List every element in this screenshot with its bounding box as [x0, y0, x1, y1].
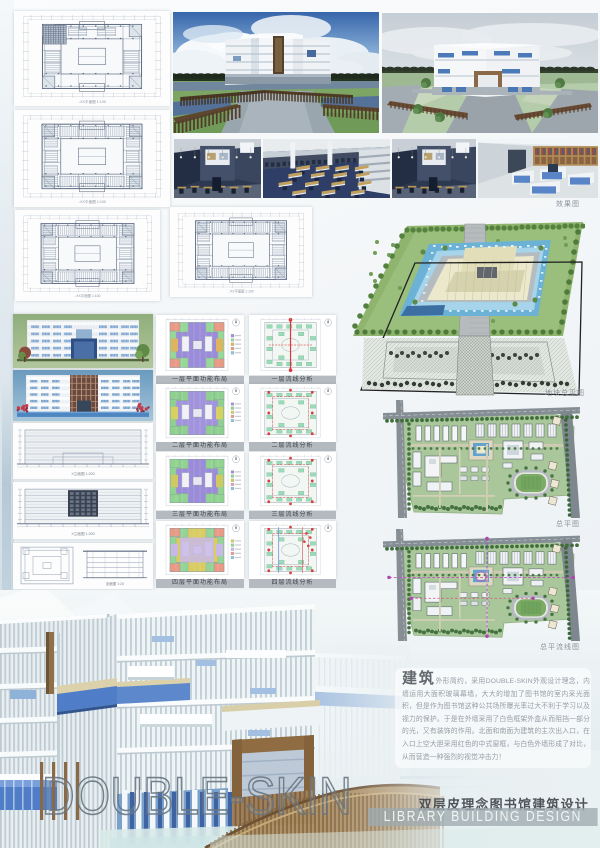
svg-text:.:XX平面图 1:100: .:XX平面图 1:100	[228, 290, 253, 294]
svg-text:剖面图 1:20: 剖面图 1:20	[106, 581, 124, 586]
svg-text:.:XX平面图 1:100: .:XX平面图 1:100	[75, 293, 101, 298]
svg-text:X立面图 1:200: X立面图 1:200	[71, 531, 94, 536]
svg-text:X立面图 1:200: X立面图 1:200	[71, 471, 94, 476]
svg-text:.:XX平面图 1:100: .:XX平面图 1:100	[78, 199, 106, 204]
svg-text:.:XX平面图 1:100: .:XX平面图 1:100	[78, 99, 106, 104]
